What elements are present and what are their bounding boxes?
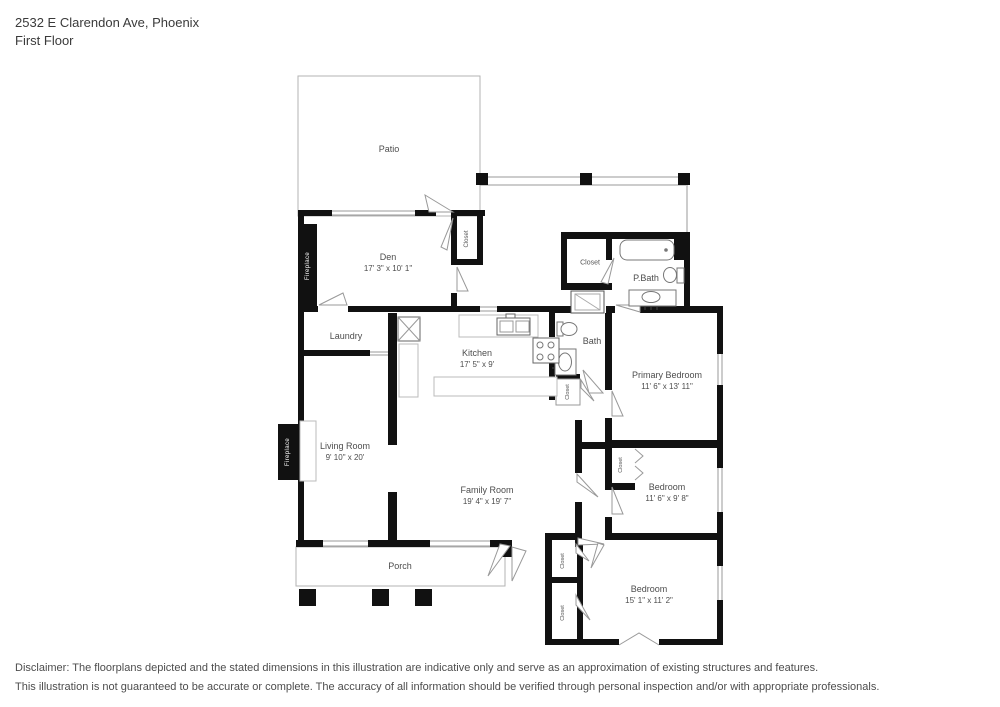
water-heater-icon xyxy=(398,317,420,341)
door-swing-den-kitchen xyxy=(457,267,468,291)
door-swing-pbath-closet xyxy=(601,258,614,284)
porch-posts xyxy=(299,589,432,606)
room-label-bedroom-middle: Bedroom 11' 6" x 9' 8" xyxy=(645,481,688,505)
room-label-kitchen: Kitchen 17' 5" x 9' xyxy=(460,347,494,371)
door-swing-hall xyxy=(577,474,598,497)
fireplace-label-den: Fireplace xyxy=(305,252,311,280)
room-label-bath: Bath xyxy=(583,335,602,347)
room-label-laundry: Laundry xyxy=(330,330,363,342)
toilet-icon-pbath xyxy=(664,268,685,284)
room-label-family-room: Family Room 19' 4" x 19' 7" xyxy=(460,484,513,508)
room-label-living-room: Living Room 9' 10" x 20' xyxy=(320,440,370,464)
counter-peninsula xyxy=(434,377,557,396)
floorplan-page: 2532 E Clarendon Ave, Phoenix First Floo… xyxy=(0,0,1000,707)
toilet-icon-bath xyxy=(557,322,577,336)
closet-label-den: Closet xyxy=(464,230,470,247)
door-swing-bedroom-middle xyxy=(612,487,623,514)
door-swing-laundry xyxy=(319,293,347,305)
disclaimer-line-2: This illustration is not guaranteed to b… xyxy=(15,681,879,693)
counter-vertical xyxy=(399,344,418,397)
door-swing-bedroom-bottom-b xyxy=(591,543,604,568)
disclaimer-line-1: Disclaimer: The floorplans depicted and … xyxy=(15,662,818,674)
room-label-primary-bedroom: Primary Bedroom 11' 6" x 13' 11" xyxy=(632,369,702,393)
bifold-door-icon xyxy=(635,449,643,480)
hearth-outline xyxy=(300,421,316,481)
bay-window xyxy=(619,633,659,645)
room-label-porch: Porch xyxy=(388,560,412,572)
closet-label-bottom-1: Closet xyxy=(560,553,566,569)
closet-label-pbath: Closet xyxy=(580,260,600,267)
room-label-bedroom-bottom: Bedroom 15' 1" x 11' 2" xyxy=(625,583,673,607)
room-label-pbath: P.Bath xyxy=(633,272,659,284)
room-label-patio: Patio xyxy=(379,143,400,155)
room-label-den: Den 17' 3" x 10' 1" xyxy=(364,251,412,275)
bathtub-drain xyxy=(665,249,668,252)
closet-label-hall: Closet xyxy=(565,384,571,400)
floorplan-drawing xyxy=(0,0,1000,707)
closet-label-bottom-2: Closet xyxy=(560,605,566,621)
door-swing-front-a xyxy=(512,547,526,581)
closet-label-bedroom-middle: Closet xyxy=(618,457,624,473)
fireplace-label-living: Fireplace xyxy=(285,438,291,466)
cooktop-icon xyxy=(533,338,559,363)
door-swing-primary-bedroom xyxy=(612,391,623,416)
shower-icon xyxy=(571,291,604,313)
